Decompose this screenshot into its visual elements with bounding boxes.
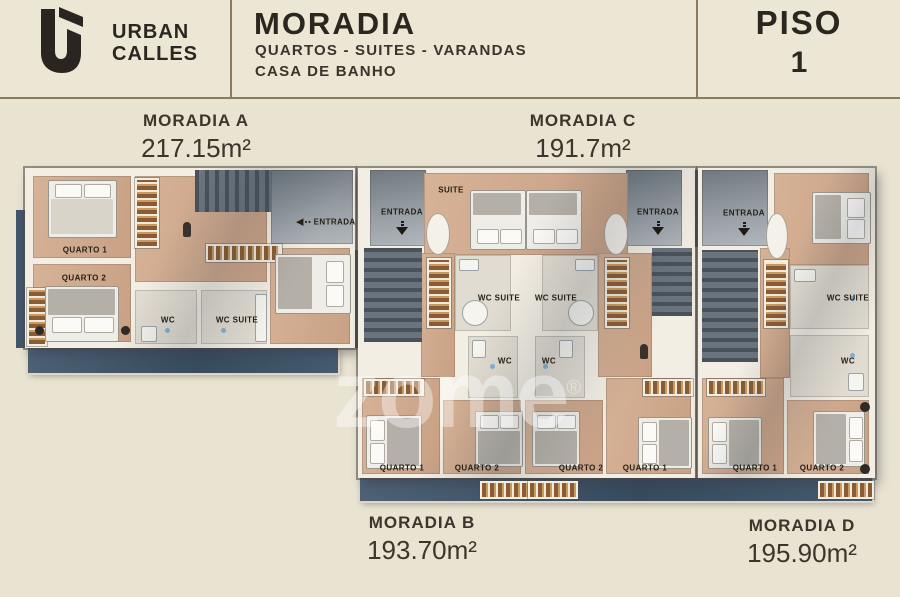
pillow bbox=[52, 317, 82, 333]
room-label-quarto2-c: QUARTO 2 bbox=[559, 464, 603, 473]
wardrobe-b bbox=[427, 258, 451, 328]
unit-name-a: MORADIA A bbox=[141, 111, 251, 131]
blanket bbox=[387, 418, 419, 466]
urban-calles-logo bbox=[30, 5, 96, 77]
unit-label-moradia-c: MORADIA C 191.7m² bbox=[530, 111, 637, 164]
balcony-closet-c bbox=[528, 481, 578, 499]
bed-quarto1-a bbox=[48, 180, 117, 238]
shower-c bbox=[568, 300, 594, 326]
entrada-label-c: ENTRADA bbox=[637, 208, 679, 217]
blanket bbox=[659, 420, 689, 466]
person-figure bbox=[640, 344, 648, 359]
room-label-quarto2-d: QUARTO 2 bbox=[800, 464, 844, 473]
wardrobe-quarto1-b bbox=[364, 379, 424, 396]
toilet-b bbox=[472, 340, 486, 358]
room-label-quarto1-c: QUARTO 1 bbox=[623, 464, 667, 473]
page: URBAN CALLES MORADIA QUARTOS - SUITES - … bbox=[0, 0, 900, 597]
room-label-wc-suite-c: WC SUITE bbox=[535, 294, 577, 303]
wardrobe-c bbox=[605, 258, 629, 328]
unit-area-b: 193.70m² bbox=[367, 535, 477, 566]
sink-b bbox=[490, 364, 495, 369]
unit-label-moradia-d: MORADIA D 195.90m² bbox=[747, 516, 857, 569]
room-label-quarto1-b: QUARTO 1 bbox=[380, 464, 424, 473]
unit-label-moradia-a: MORADIA A 217.15m² bbox=[141, 111, 251, 164]
pillow bbox=[326, 285, 344, 307]
units-b-c-block: SUITE ENTRADA ENTRADA WC SUITE WC SUITE … bbox=[358, 168, 695, 478]
wardrobe-quarto1-a bbox=[135, 178, 159, 248]
wardrobe-quarto2-a bbox=[27, 288, 47, 346]
piso-label: PISO bbox=[698, 4, 900, 42]
blanket bbox=[478, 431, 520, 464]
unit-area-d: 195.90m² bbox=[747, 538, 857, 569]
sink-counter-c bbox=[575, 259, 595, 271]
unit-a-block: QUARTO 1 QUARTO 2 WC WC SUITE ◀••ENTRADA bbox=[25, 168, 355, 348]
room-label-quarto2-a: QUARTO 2 bbox=[62, 274, 106, 283]
unit-name-b: MORADIA B bbox=[367, 513, 477, 533]
pillow bbox=[533, 229, 555, 244]
brand-line1: URBAN bbox=[112, 22, 198, 44]
entrada-arrow-down-icon bbox=[652, 220, 664, 235]
pillow bbox=[84, 317, 114, 333]
bed-quarto2-b bbox=[475, 411, 523, 467]
shower-b bbox=[462, 300, 488, 326]
pillow bbox=[642, 444, 657, 464]
balcony-closet-b bbox=[480, 481, 530, 499]
pillow bbox=[326, 261, 344, 283]
stairs-c bbox=[652, 248, 692, 316]
entrada-arrow-down-icon bbox=[738, 221, 750, 236]
pillow bbox=[84, 184, 111, 198]
unit-d-block: ENTRADA WC SUITE WC QUARTO 1 QUARTO 2 bbox=[698, 168, 875, 478]
blanket bbox=[816, 414, 846, 464]
pillow bbox=[712, 422, 727, 442]
pillow bbox=[847, 198, 865, 218]
room-label-wc-suite-d: WC SUITE bbox=[827, 294, 869, 303]
room-label-quarto1-d: QUARTO 1 bbox=[733, 464, 777, 473]
unit-name-d: MORADIA D bbox=[747, 516, 857, 536]
room-label-wc-suite-b: WC SUITE bbox=[478, 294, 520, 303]
sink-counter-d bbox=[794, 269, 816, 282]
pillow bbox=[370, 443, 385, 464]
wardrobe-d bbox=[764, 260, 788, 328]
entrada-label-d: ENTRADA bbox=[723, 209, 765, 218]
sink-a-suite bbox=[221, 328, 226, 333]
pillow bbox=[849, 440, 863, 462]
room-label-quarto1-a: QUARTO 1 bbox=[63, 246, 107, 255]
nightstand bbox=[121, 326, 130, 335]
room-label-suite: SUITE bbox=[438, 186, 464, 195]
bed-suite-b bbox=[470, 190, 526, 250]
nightstand bbox=[35, 326, 44, 335]
entrada-text-a: ENTRADA bbox=[314, 218, 356, 227]
pillow bbox=[847, 219, 865, 239]
blanket bbox=[473, 193, 521, 215]
pillow bbox=[500, 415, 519, 429]
toilet-d bbox=[848, 373, 864, 391]
room-label-wc-b: WC bbox=[498, 357, 512, 366]
pillow bbox=[642, 422, 657, 442]
console-table-b bbox=[426, 213, 450, 255]
piso-number: 1 bbox=[698, 46, 900, 80]
subtitle-line1: QUARTOS - SUITES - VARANDAS bbox=[255, 42, 527, 59]
unit-label-moradia-b: MORADIA B 193.70m² bbox=[367, 513, 477, 566]
pillow bbox=[480, 415, 499, 429]
floor-plan: MORADIA A 217.15m² MORADIA C 191.7m² MOR… bbox=[0, 99, 900, 597]
pillow bbox=[500, 229, 522, 244]
entrada-arrow-down-icon bbox=[396, 220, 408, 235]
nightstand bbox=[860, 464, 870, 474]
sink-a bbox=[165, 328, 170, 333]
blanket bbox=[529, 193, 577, 215]
wardrobe-quarto1-d bbox=[707, 379, 765, 396]
room-label-wc-suite-a: WC SUITE bbox=[216, 316, 258, 325]
bed-quarto2-d bbox=[813, 411, 865, 467]
pillow bbox=[537, 415, 556, 429]
terrace-unit-a bbox=[28, 348, 338, 373]
wardrobe-hall-a bbox=[206, 244, 282, 262]
sink-counter-b bbox=[459, 259, 479, 271]
toilet-a bbox=[141, 326, 157, 342]
page-title: MORADIA bbox=[254, 6, 416, 42]
entrada-dots-icon: •• bbox=[305, 220, 312, 227]
console-table-d bbox=[766, 213, 788, 259]
title-box: MORADIA QUARTOS - SUITES - VARANDAS CASA… bbox=[232, 0, 698, 97]
room-label-wc-d: WC bbox=[841, 357, 855, 366]
blanket bbox=[815, 195, 841, 239]
pillow bbox=[556, 229, 578, 244]
pillow bbox=[557, 415, 576, 429]
unit-area-a: 217.15m² bbox=[141, 133, 251, 164]
bed-quarto1-d bbox=[708, 417, 762, 469]
pillow bbox=[477, 229, 499, 244]
unit-area-c: 191.7m² bbox=[530, 133, 637, 164]
entrada-arrow-left-icon: ◀ bbox=[296, 217, 303, 227]
brand-line2: CALLES bbox=[112, 44, 198, 66]
floor-indicator: PISO 1 bbox=[698, 0, 900, 97]
blanket bbox=[278, 257, 312, 309]
header: URBAN CALLES MORADIA QUARTOS - SUITES - … bbox=[0, 0, 900, 99]
bed-suite-c bbox=[526, 190, 582, 250]
bed-suite-a bbox=[275, 254, 351, 314]
room-label-quarto2-b: QUARTO 2 bbox=[455, 464, 499, 473]
toilet-c bbox=[559, 340, 573, 358]
person-figure bbox=[183, 222, 191, 237]
stairs-d bbox=[702, 250, 758, 362]
room-label-wc-a: WC bbox=[161, 316, 175, 325]
entrada-landing-a bbox=[271, 170, 353, 244]
pillow bbox=[849, 417, 863, 439]
brand-box: URBAN CALLES bbox=[0, 0, 232, 97]
bed-quarto1-c bbox=[638, 417, 692, 469]
room-label-wc-c: WC bbox=[542, 357, 556, 366]
bed-quarto1-b bbox=[366, 415, 422, 469]
bed-quarto2-c bbox=[532, 411, 580, 467]
blanket bbox=[51, 199, 113, 234]
pillow bbox=[55, 184, 82, 198]
stairs-a bbox=[195, 170, 281, 212]
pillow bbox=[712, 444, 727, 464]
entrada-label-a: ◀••ENTRADA bbox=[296, 217, 355, 228]
stairs-b bbox=[364, 248, 422, 342]
bed-suite-d bbox=[812, 192, 871, 244]
bed-quarto2-a bbox=[45, 286, 119, 342]
blanket bbox=[535, 431, 577, 464]
unit-name-c: MORADIA C bbox=[530, 111, 637, 131]
pillow bbox=[370, 420, 385, 441]
terrace-units-bcd bbox=[360, 478, 872, 501]
console-table-c bbox=[604, 213, 628, 255]
entrada-label-b: ENTRADA bbox=[381, 208, 423, 217]
brand-name: URBAN CALLES bbox=[112, 22, 198, 65]
wardrobe-quarto1-c bbox=[643, 379, 693, 396]
subtitle-line2: CASA DE BANHO bbox=[255, 63, 397, 80]
balcony-closet-d bbox=[818, 481, 874, 499]
blanket bbox=[729, 420, 759, 466]
nightstand bbox=[860, 402, 870, 412]
blanket bbox=[48, 289, 115, 315]
